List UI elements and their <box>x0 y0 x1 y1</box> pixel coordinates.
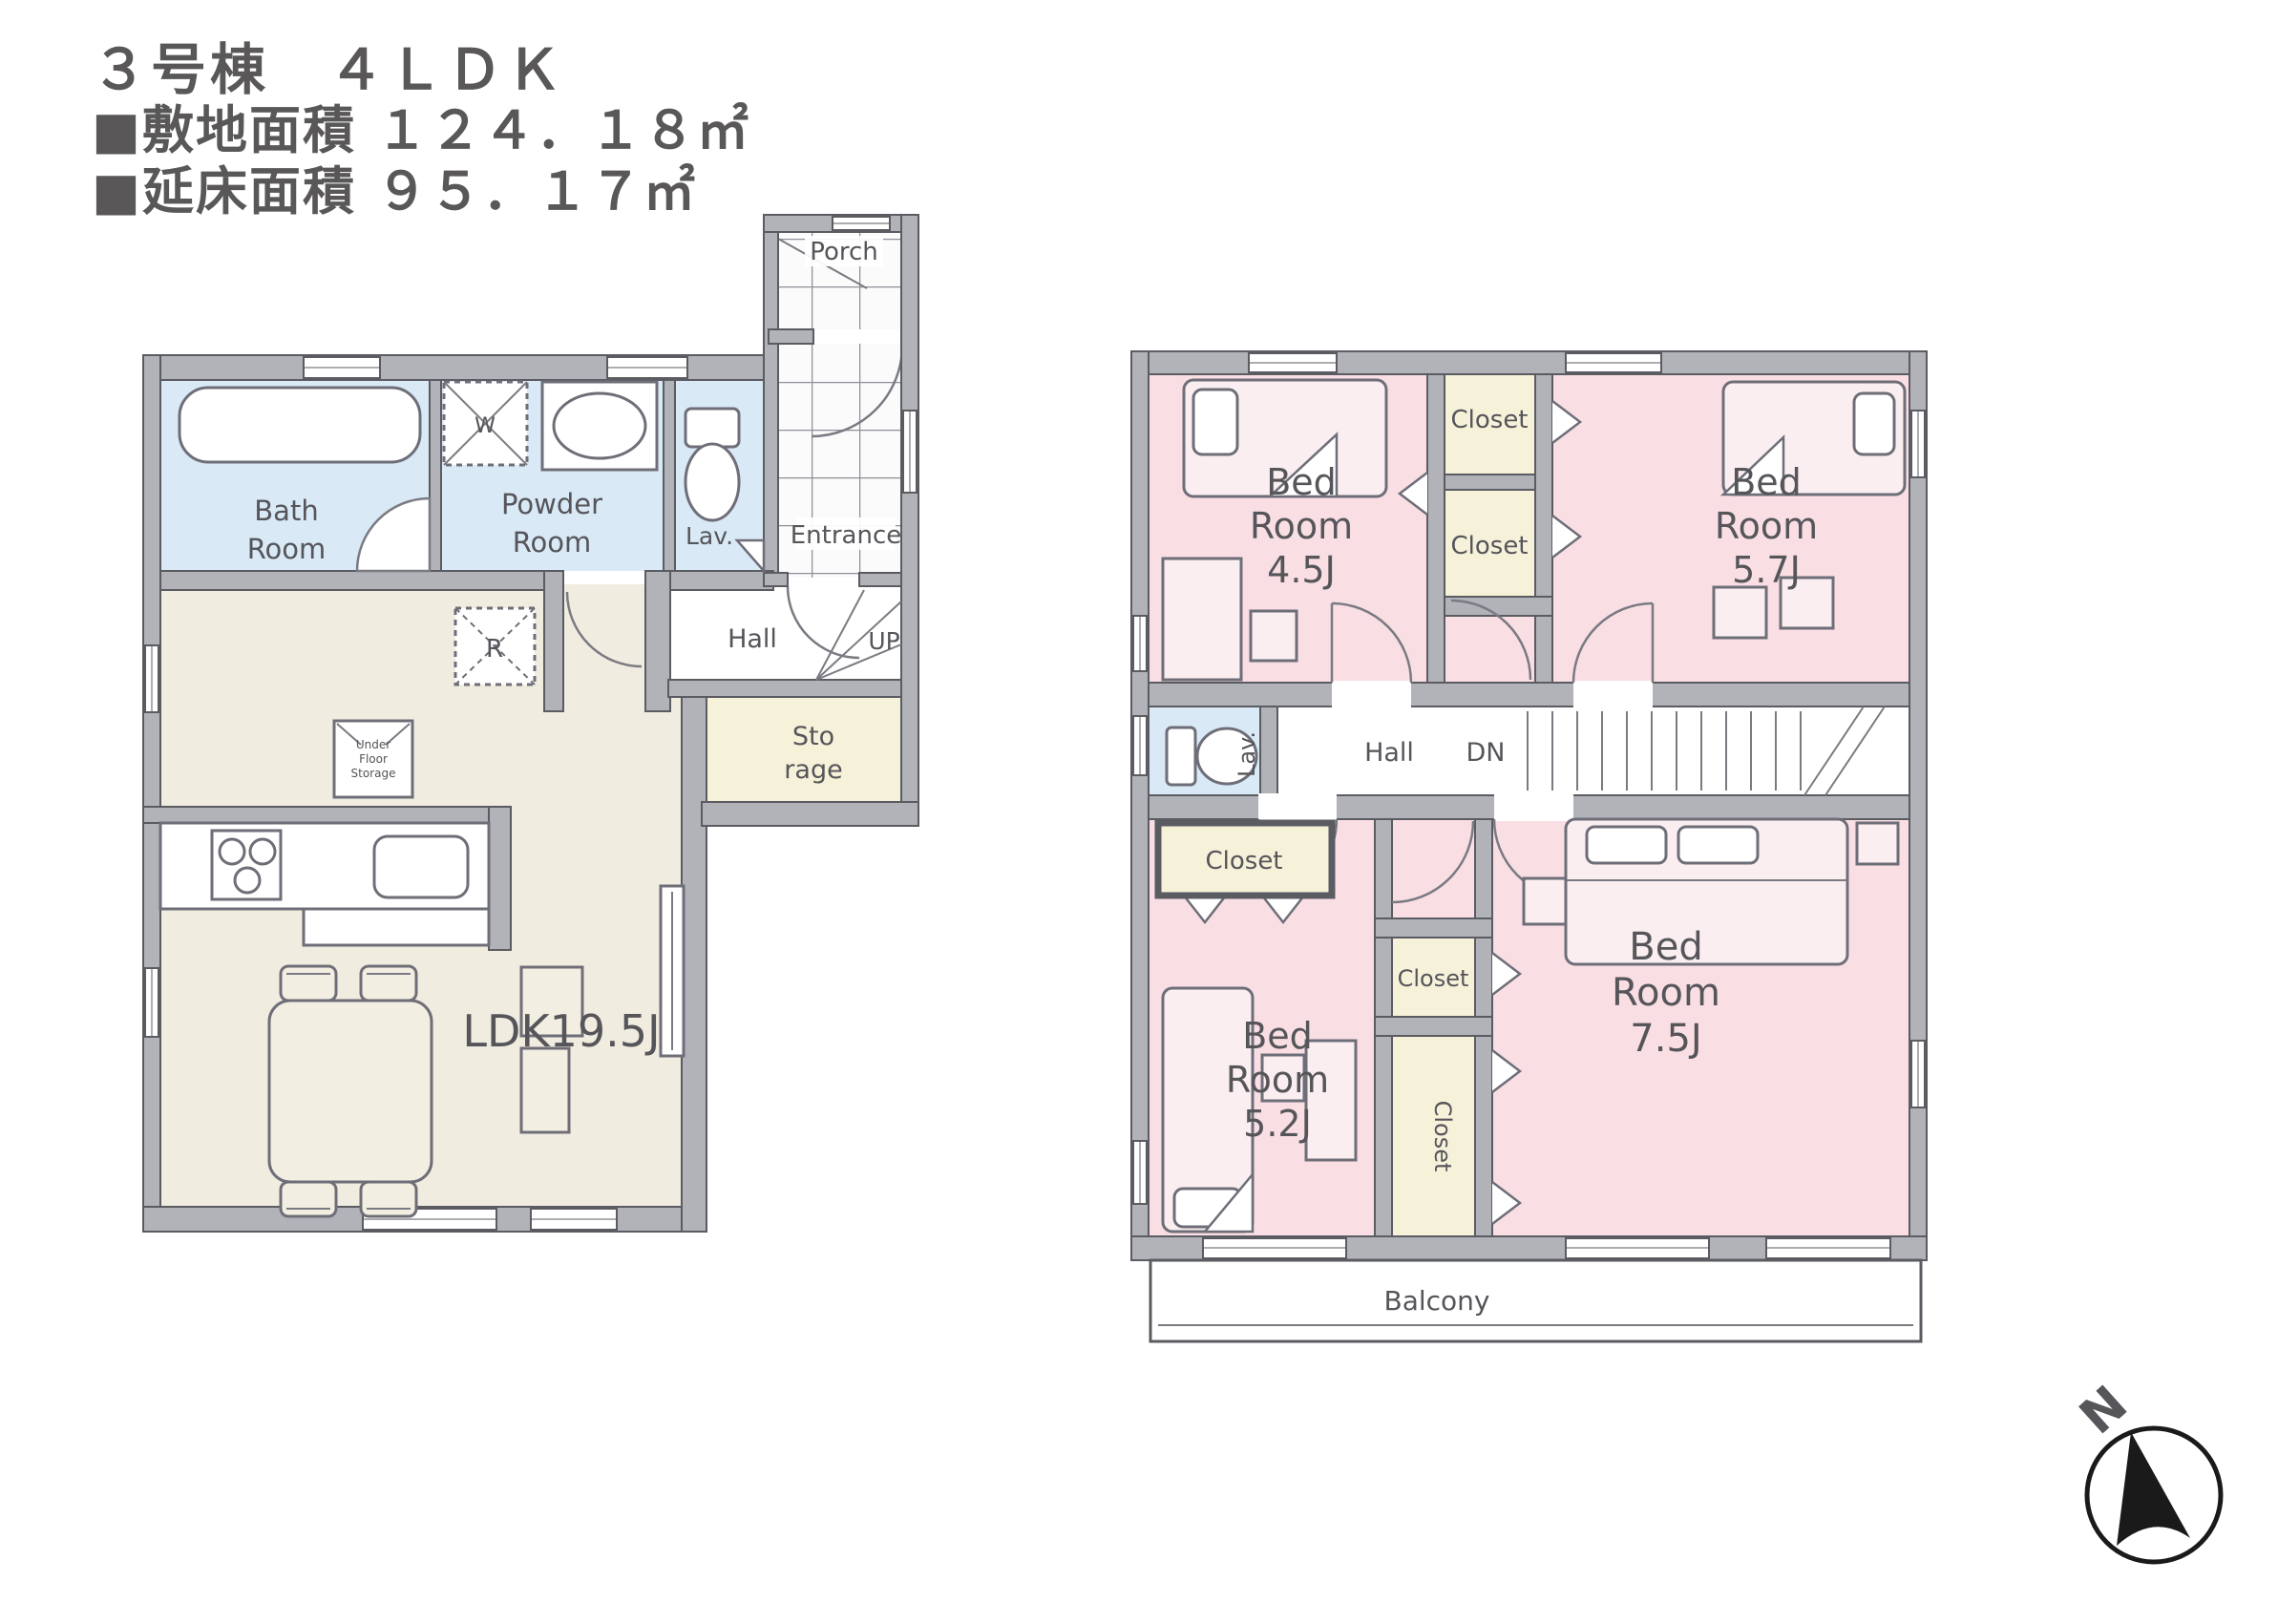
wall <box>668 680 901 697</box>
bathtub-icon <box>179 388 420 462</box>
bedroom-45-label: Bed <box>1266 461 1337 503</box>
powder-room-label: Powder <box>501 488 602 520</box>
storage-label: Sto <box>792 722 834 751</box>
floorplan-page: ３号棟 ４ＬＤＫ ■敷地面積 １２４．１８㎡ ■延床面積 ９５．１７㎡ <box>0 0 2278 1624</box>
bedroom-57-label: Bed <box>1731 461 1802 503</box>
ufs-label: Storage <box>351 767 396 780</box>
bedroom-45-label: Room <box>1250 505 1353 547</box>
washer-label: W <box>475 414 496 438</box>
bedroom-52-label: 5.2J <box>1243 1103 1312 1145</box>
wall <box>160 571 563 590</box>
refrigerator-label: R <box>486 635 503 664</box>
low-table-icon <box>521 1048 569 1132</box>
chair-icon <box>361 966 416 1001</box>
storage-label: rage <box>784 755 842 785</box>
stove-icon <box>212 831 281 899</box>
dining-table-icon <box>269 1001 432 1182</box>
chair-icon <box>281 966 336 1001</box>
wall <box>1535 374 1552 683</box>
ldk-label: LDK19.5J <box>462 1005 660 1057</box>
hall2-label: Hall <box>1364 738 1414 768</box>
powder-sink-icon <box>542 382 657 470</box>
balcony-label: Balcony <box>1384 1285 1490 1317</box>
double-bed-icon <box>1566 819 1847 964</box>
bedroom-75-label: Room <box>1612 971 1720 1015</box>
wall <box>702 802 918 826</box>
compass-icon: N <box>2069 1376 2221 1562</box>
lav2-label: Lav. <box>1234 731 1260 777</box>
wall <box>901 215 918 826</box>
bedroom-45-label: 4.5J <box>1267 549 1336 591</box>
closet-access2 <box>1392 819 1475 918</box>
wall <box>1445 597 1552 616</box>
wall <box>1909 351 1927 1260</box>
closet-label: Closet <box>1398 965 1469 992</box>
balcony <box>1150 1260 1921 1341</box>
wall <box>489 807 511 950</box>
closet-access <box>1445 616 1535 683</box>
stairs2-area <box>1506 707 1909 795</box>
door-gap <box>1494 793 1573 821</box>
wall <box>143 807 511 823</box>
bedroom-52-label: Room <box>1226 1059 1329 1101</box>
bedroom-57-label: Room <box>1715 505 1818 547</box>
closet-label: Closet <box>1205 847 1282 875</box>
wall <box>769 329 813 344</box>
floor2-plan: Bed Room 4.5J Bed Room 5.7J Closet Close… <box>1131 351 1927 1341</box>
wall <box>430 380 441 571</box>
bed-icon <box>1163 988 1253 1232</box>
bedroom-52-label: Bed <box>1242 1015 1313 1057</box>
ufs-label: Floor <box>359 752 388 766</box>
wall <box>682 680 707 1232</box>
floor1-plan: Bath Room Powder Room W Lav. Porch Entra… <box>143 215 918 1232</box>
powder-room-label: Room <box>513 526 592 559</box>
wall <box>143 355 160 1232</box>
wall <box>764 215 778 584</box>
wall <box>1149 683 1909 707</box>
nightstand-icon <box>1524 878 1566 924</box>
wall <box>1375 1017 1492 1036</box>
door-gap <box>1332 681 1411 708</box>
lav-label: Lav. <box>686 522 733 550</box>
chair-icon <box>281 1182 336 1216</box>
hall-area <box>670 590 901 680</box>
bedroom-57-label: 5.7J <box>1732 549 1801 591</box>
bath-room-label: Room <box>247 533 327 565</box>
floorplan-canvas: Bath Room Powder Room W Lav. Porch Entra… <box>0 0 2278 1624</box>
wall <box>1260 707 1277 795</box>
chair-icon <box>361 1182 416 1216</box>
entrance-label: Entrance <box>791 521 902 550</box>
wall <box>645 571 670 711</box>
hall-label: Hall <box>728 624 777 654</box>
bedroom-75-label: 7.5J <box>1630 1017 1701 1061</box>
door-gap <box>1573 681 1653 708</box>
bedroom-75-label: Bed <box>1629 925 1702 969</box>
wall <box>1445 475 1535 490</box>
nightstand-icon <box>1857 823 1898 864</box>
wall <box>1427 374 1445 683</box>
ufs-label: Under <box>356 738 390 751</box>
closet-label: Closet <box>1429 1101 1456 1172</box>
toilet-icon <box>686 409 739 520</box>
desk-icon <box>1163 559 1241 680</box>
up-label: UP <box>868 627 899 655</box>
dn-label: DN <box>1466 738 1506 768</box>
wall <box>544 571 563 711</box>
door-gap <box>1258 793 1337 821</box>
closet-label: Closet <box>1450 406 1528 434</box>
nightstand-icon <box>1714 587 1766 638</box>
wall <box>1375 918 1492 938</box>
bath-room-label: Bath <box>254 495 318 527</box>
wall <box>1131 351 1149 1260</box>
porch-label: Porch <box>810 238 878 266</box>
closet-label: Closet <box>1450 532 1528 560</box>
wall <box>859 573 901 586</box>
chair-icon <box>1251 611 1297 661</box>
tv-board-icon <box>661 886 684 1056</box>
wall <box>764 573 788 586</box>
wall <box>664 380 675 571</box>
kitchen-sink-icon <box>374 836 468 897</box>
